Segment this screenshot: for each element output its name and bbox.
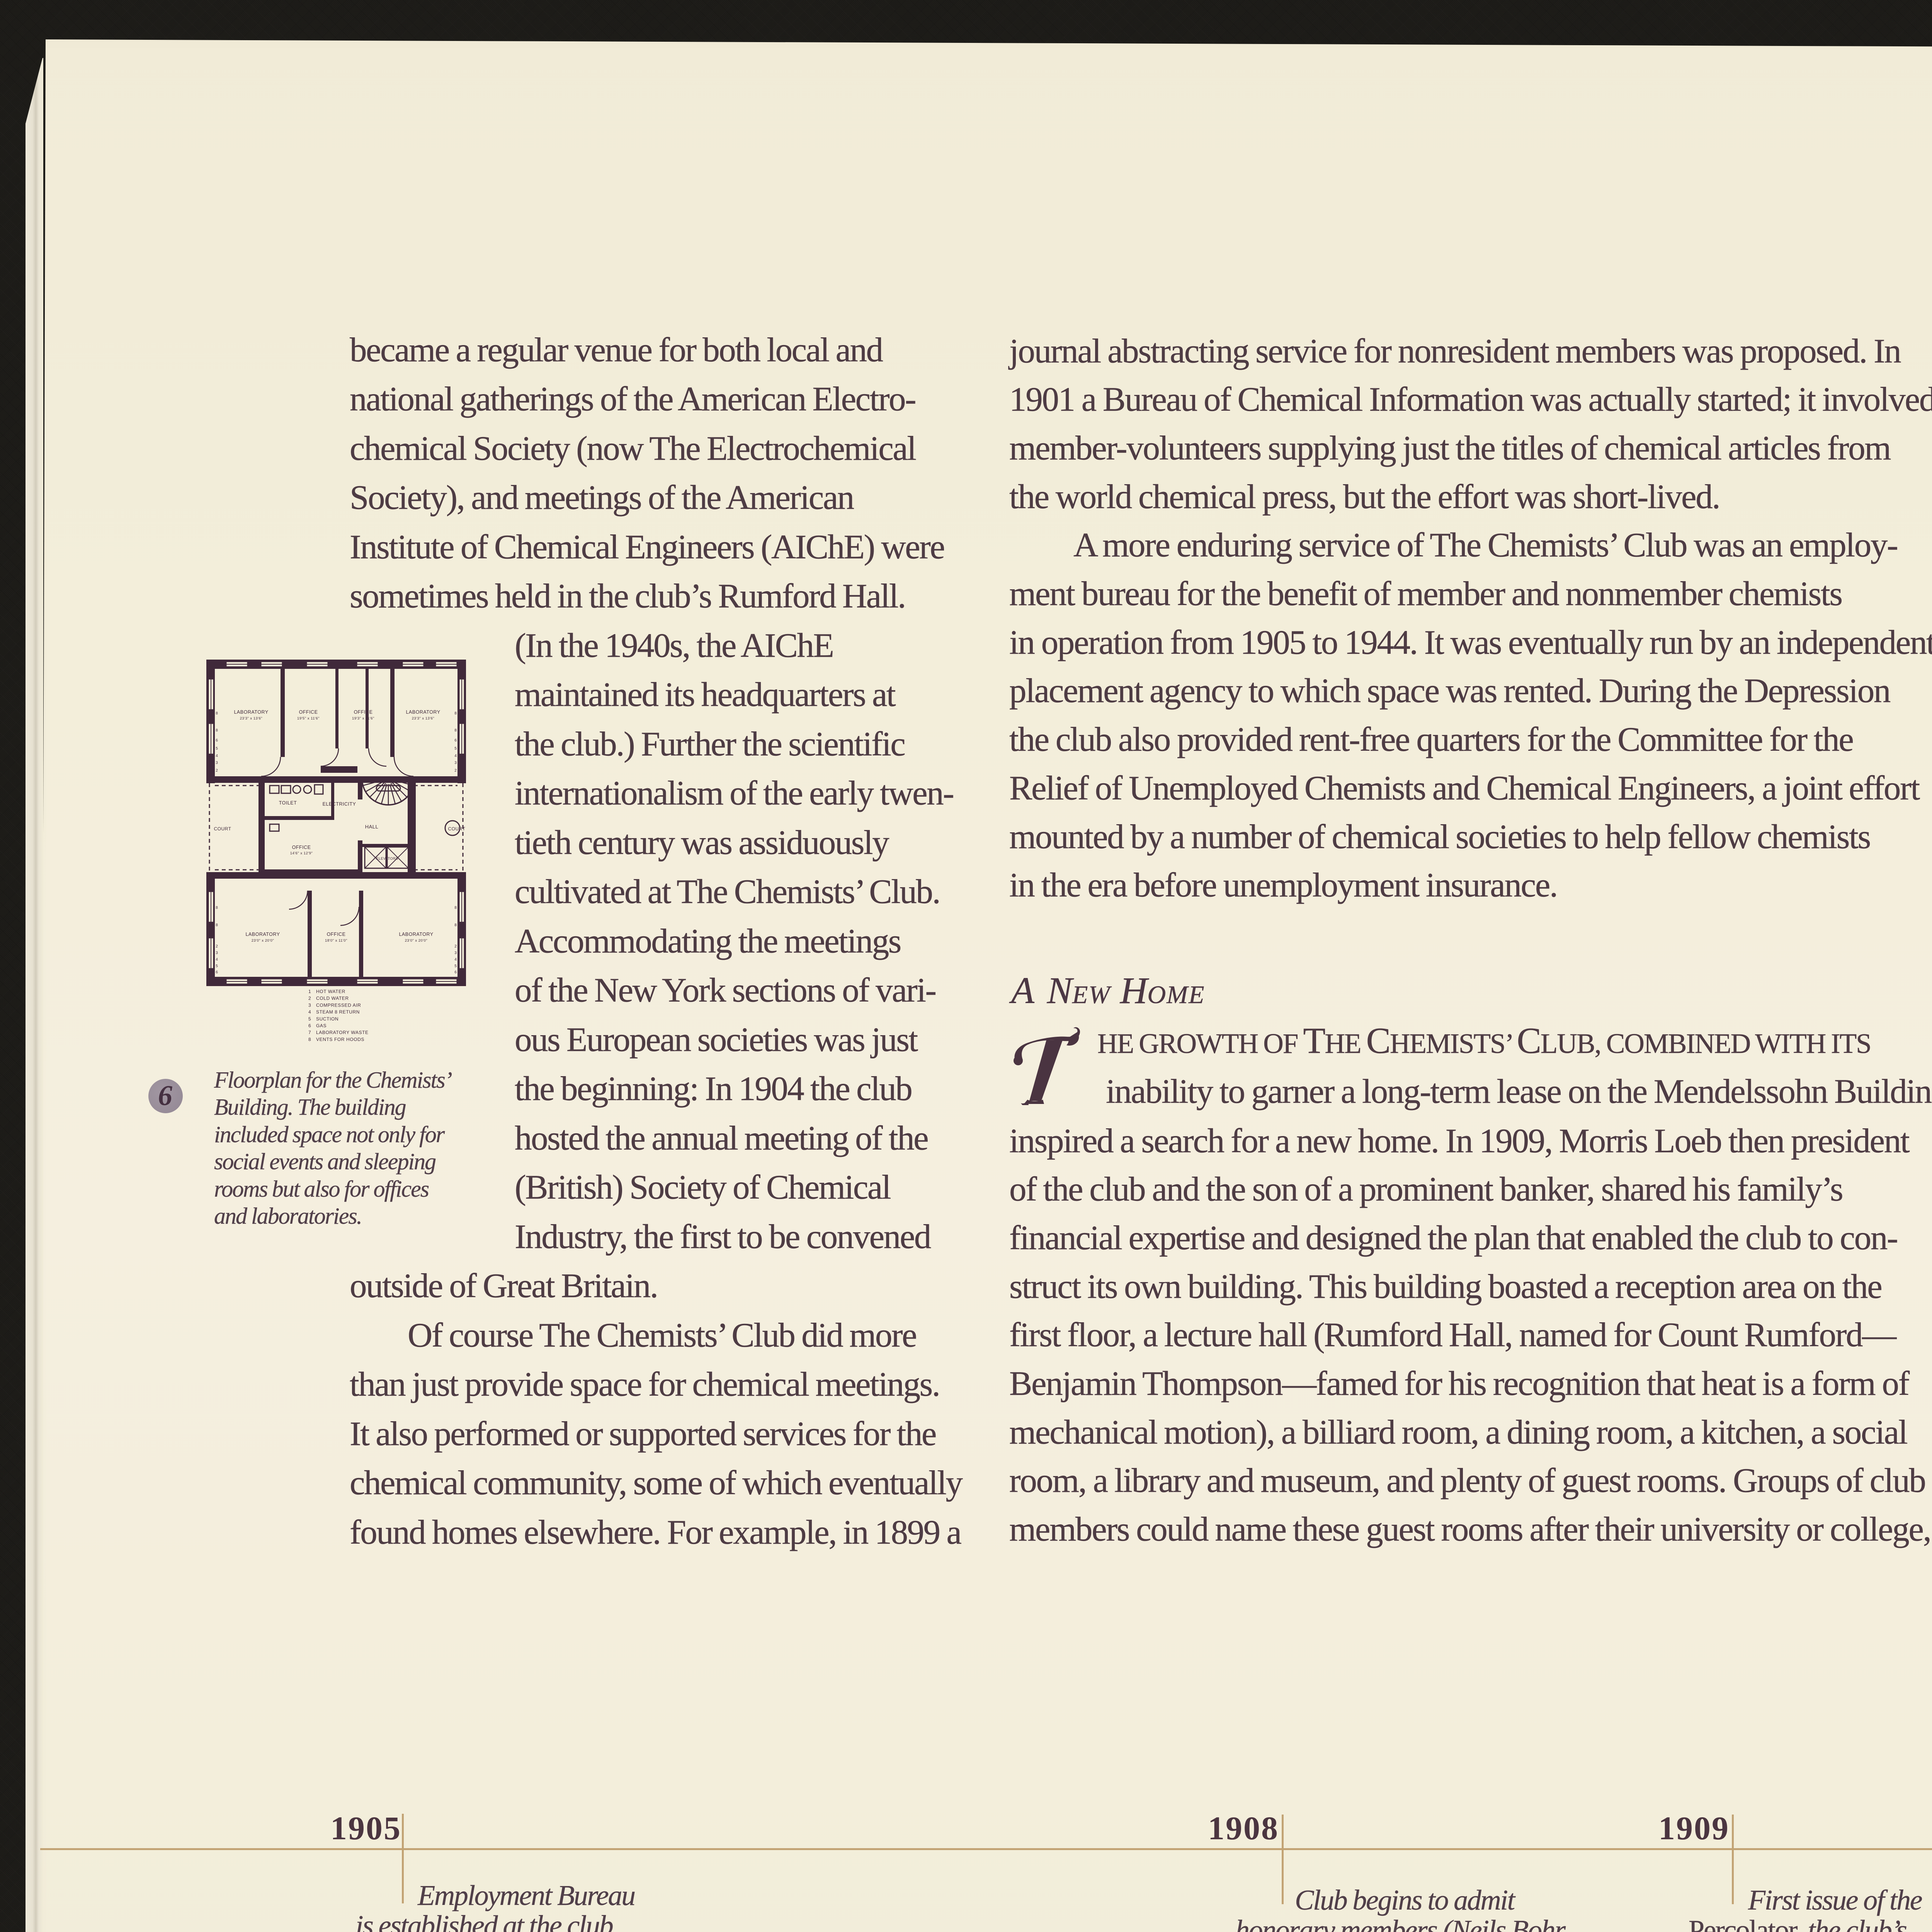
- svg-text:23'3" x 13'6": 23'3" x 13'6": [240, 716, 263, 721]
- svg-text:3: 3: [216, 951, 218, 955]
- svg-text:8: 8: [454, 906, 457, 910]
- svg-text:6: 6: [216, 970, 218, 975]
- svg-text:5: 5: [216, 747, 218, 751]
- svg-text:8: 8: [454, 711, 457, 716]
- svg-text:8: 8: [454, 728, 457, 733]
- svg-text:4: 4: [216, 957, 218, 962]
- svg-text:19'5" x 11'6": 19'5" x 11'6": [297, 716, 320, 721]
- svg-text:2: 2: [454, 944, 457, 949]
- svg-text:4: 4: [454, 754, 457, 758]
- svg-text:8: 8: [308, 1037, 311, 1042]
- svg-text:ELEVATORS: ELEVATORS: [376, 857, 398, 861]
- svg-text:6: 6: [216, 738, 218, 743]
- svg-text:STEAM 8 RETURN: STEAM 8 RETURN: [316, 1009, 360, 1015]
- svg-text:23'0" x 20'0": 23'0" x 20'0": [405, 939, 428, 943]
- svg-text:5: 5: [308, 1016, 311, 1022]
- svg-text:3: 3: [454, 951, 457, 955]
- svg-text:8: 8: [216, 923, 218, 927]
- svg-text:COURT: COURT: [214, 826, 231, 832]
- svg-text:SUCTION: SUCTION: [316, 1016, 338, 1022]
- svg-text:LABORATORY: LABORATORY: [245, 932, 280, 937]
- svg-text:LABORATORY: LABORATORY: [399, 932, 433, 937]
- svg-text:4: 4: [454, 957, 457, 962]
- svg-text:5: 5: [454, 964, 457, 968]
- svg-text:2: 2: [216, 944, 218, 949]
- svg-text:14'6" x 12'9": 14'6" x 12'9": [290, 851, 313, 855]
- svg-text:7: 7: [308, 1030, 311, 1035]
- svg-text:19'3" x 11'6": 19'3" x 11'6": [352, 716, 374, 721]
- svg-text:LABORATORY WASTE: LABORATORY WASTE: [316, 1030, 369, 1035]
- svg-text:2: 2: [308, 996, 311, 1001]
- svg-text:6: 6: [454, 738, 457, 743]
- svg-text:8: 8: [454, 923, 457, 927]
- svg-text:8: 8: [216, 906, 218, 910]
- svg-text:LABORATORY: LABORATORY: [234, 709, 268, 715]
- svg-text:3: 3: [454, 761, 457, 765]
- svg-text:8: 8: [216, 728, 218, 733]
- svg-text:5: 5: [454, 747, 457, 751]
- svg-text:LABORATORY: LABORATORY: [406, 709, 440, 715]
- svg-text:23'0" x 20'0": 23'0" x 20'0": [252, 939, 274, 943]
- svg-text:1: 1: [308, 989, 311, 994]
- svg-text:VENTS FOR HOODS: VENTS FOR HOODS: [316, 1037, 364, 1042]
- svg-text:HALL: HALL: [365, 824, 379, 830]
- svg-text:OFFICE: OFFICE: [327, 932, 346, 937]
- svg-text:ELECTRICITY: ELECTRICITY: [323, 801, 356, 807]
- svg-text:TOILET: TOILET: [279, 800, 297, 806]
- svg-text:HOT WATER: HOT WATER: [316, 989, 345, 994]
- svg-text:OFFICE: OFFICE: [354, 709, 373, 715]
- svg-text:5: 5: [216, 964, 218, 968]
- svg-text:2: 2: [216, 769, 218, 773]
- svg-text:COLD WATER: COLD WATER: [316, 996, 349, 1001]
- svg-text:3: 3: [308, 1002, 311, 1008]
- svg-text:4: 4: [308, 1009, 311, 1015]
- svg-text:COMPRESSED AIR: COMPRESSED AIR: [316, 1002, 361, 1008]
- svg-text:OFFICE: OFFICE: [299, 709, 318, 715]
- svg-text:6: 6: [454, 970, 457, 975]
- svg-text:3: 3: [216, 761, 218, 765]
- svg-text:OFFICE: OFFICE: [292, 845, 311, 850]
- svg-text:4: 4: [216, 754, 218, 758]
- svg-text:6: 6: [308, 1023, 311, 1029]
- svg-text:23'3" x 13'6": 23'3" x 13'6": [412, 716, 435, 721]
- svg-text:18'0" x 11'0": 18'0" x 11'0": [325, 939, 347, 943]
- svg-text:8: 8: [216, 711, 218, 716]
- svg-text:COURT: COURT: [448, 826, 466, 832]
- svg-text:GAS: GAS: [316, 1023, 327, 1029]
- svg-text:2: 2: [454, 769, 457, 773]
